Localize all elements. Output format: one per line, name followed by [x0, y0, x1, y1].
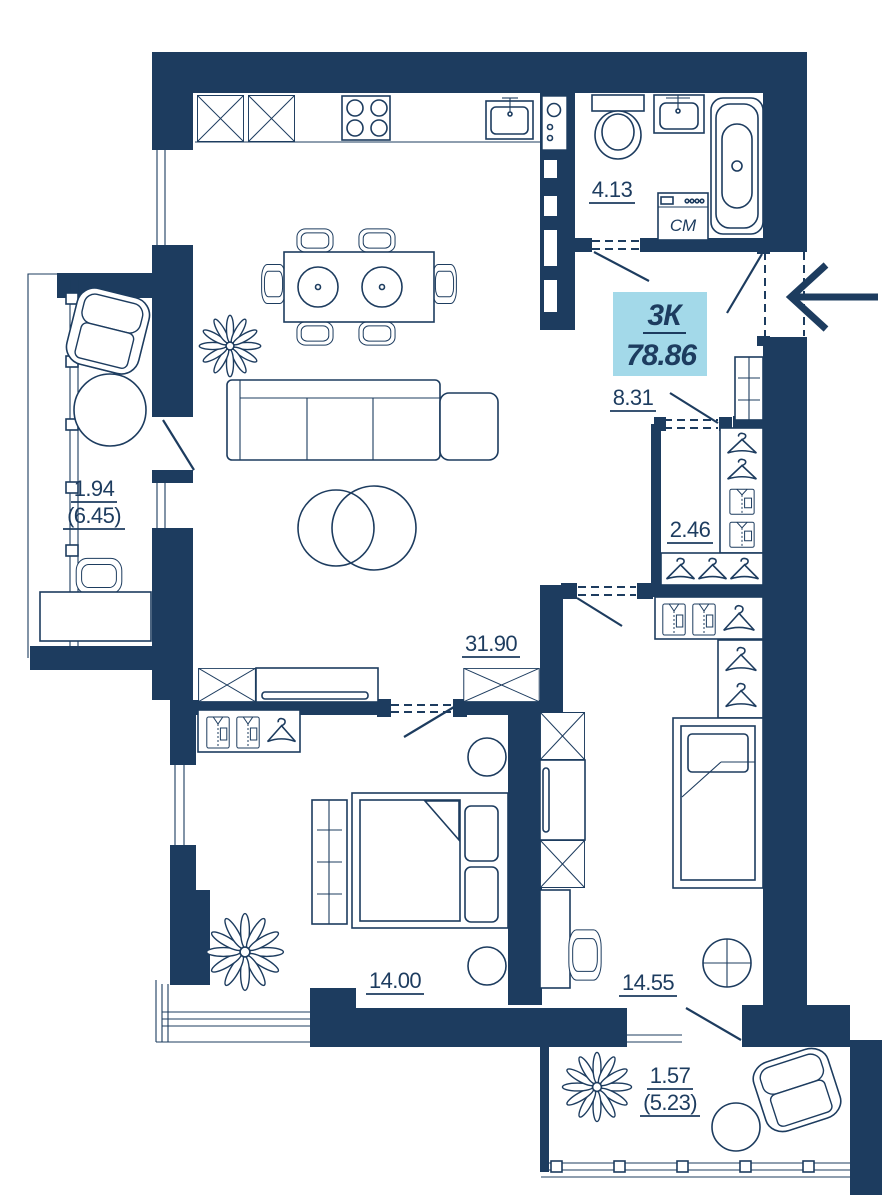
hall-bench: [735, 357, 763, 420]
shirt-icon: [693, 604, 715, 635]
kitchen-sink: [486, 98, 533, 139]
sofa: [227, 380, 498, 460]
round-table: [703, 939, 751, 987]
wardrobe-door: [664, 393, 718, 428]
bedroom2-balcony-window: [627, 1035, 682, 1042]
loggia-bottom-furniture: [562, 1044, 845, 1151]
cabinet-x: [540, 712, 584, 759]
wall-bottom-main: [310, 1008, 627, 1047]
wardrobe-room-furniture: [661, 428, 763, 585]
bedroom1-door-post-left: [377, 699, 391, 717]
desk: [540, 890, 570, 988]
loggia-left-door-leaf: [163, 420, 194, 470]
bedroom2-wardrobe: [655, 597, 763, 639]
cabinet-x: [540, 840, 584, 887]
plant: [199, 315, 260, 376]
wall-top: [152, 52, 807, 93]
dining-table: [284, 252, 434, 322]
desk-chair: [76, 558, 122, 593]
floor-plan: СМ: [0, 0, 882, 1200]
bedroom1-bench: [312, 800, 347, 924]
bathroom-fixtures: СМ: [592, 95, 763, 240]
bedroom2-door: [577, 587, 636, 626]
bedroom2-door-post-right: [637, 583, 653, 599]
room-label-bathroom: 4.13: [592, 177, 633, 202]
dining-chair: [297, 322, 333, 345]
desk: [40, 592, 151, 641]
hall-bedroom2-wall: [540, 585, 563, 712]
shaft-slot: [544, 196, 557, 216]
hall-furniture: [735, 357, 763, 420]
wall-left-a: [152, 93, 193, 150]
washbasin: [654, 95, 704, 133]
shaft-slot: [544, 160, 557, 178]
armchair: [749, 1044, 845, 1137]
plant: [562, 1052, 631, 1121]
bedroom1-wardrobe: [198, 710, 300, 752]
loggia-left-bottom-wall: [30, 646, 153, 670]
sofa-chaise: [440, 393, 498, 460]
loggia-bottom-glazing: [541, 1161, 852, 1177]
pillow: [465, 867, 498, 922]
bedroom1-window: [175, 765, 184, 845]
shaft-slot: [544, 230, 557, 266]
coffee-tables: [298, 486, 416, 570]
dining-chair: [262, 265, 286, 304]
bed-single: [673, 718, 763, 888]
kitchen: [195, 95, 540, 142]
wall-left-c: [152, 470, 193, 483]
round-table: [712, 1103, 760, 1151]
bedroom-1-furniture: [198, 710, 508, 990]
entry-door-post-bottom: [757, 336, 770, 346]
tv-screen: [543, 768, 549, 832]
shirt-icon: [207, 717, 229, 748]
floor-plan-page: СМ: [0, 0, 882, 1200]
tv-stand-row: [199, 668, 540, 702]
kitchen-window: [157, 150, 165, 245]
desk-chair: [569, 930, 601, 980]
bedroom2-door-post-left: [561, 583, 577, 599]
round-table: [74, 374, 146, 446]
unit-area-label: 78.86: [626, 339, 697, 372]
wardrobe-bottom-wall: [651, 585, 763, 597]
room-label-loggia-bottom-weighted: (5.23): [643, 1090, 697, 1115]
room-label-loggia-bottom: 1.57: [650, 1063, 691, 1088]
bottom-wall-step: [310, 988, 356, 1010]
room-label-loggia-left-weighted: (6.45): [67, 503, 121, 528]
bedroom1-door: [391, 705, 454, 737]
bedroom-2-furniture: [540, 597, 763, 988]
unit-type-label: 3К: [647, 299, 684, 332]
shirt-icon: [237, 717, 259, 748]
room-label-wardrobe: 2.46: [670, 517, 711, 542]
wall-left-d: [152, 528, 193, 700]
room-label-bedroom-2: 14.55: [622, 970, 674, 995]
bedroom1-left-wall-c: [170, 890, 210, 985]
room-label-hall: 8.31: [613, 385, 654, 410]
shirt-icon: [663, 604, 685, 635]
loggia-bottom-left-wall: [540, 1047, 549, 1172]
shirt-icon: [730, 522, 754, 547]
unit-info-badge: 3К 78.86: [613, 292, 707, 376]
bedroom1-corner-window: [156, 980, 310, 1042]
room-label-loggia-left: 1.94: [74, 476, 115, 501]
stool: [468, 738, 506, 776]
wall-left-b: [152, 245, 193, 417]
tv-cabinet-x: [464, 668, 539, 701]
tv-cabinet-x: [199, 668, 256, 701]
washing-machine: СМ: [658, 193, 708, 240]
bedroom2-hanger-column: [718, 640, 763, 718]
stool: [468, 947, 506, 985]
bedrooms-divider-wall: [508, 700, 542, 1005]
bed-double: [352, 793, 508, 928]
loggia-bottom-right-wall: [850, 1040, 882, 1195]
dining-chair: [433, 265, 457, 304]
dining-chair: [359, 229, 395, 252]
bathroom-wall-left: [567, 238, 592, 252]
washing-machine-label: СМ: [670, 216, 697, 235]
dining-set: [262, 229, 457, 345]
shaft-slot: [544, 280, 557, 312]
tv-screen: [262, 692, 368, 699]
toilet: [592, 95, 644, 159]
pillow: [465, 806, 498, 861]
plant: [207, 914, 284, 991]
kitchen-stove: [342, 96, 390, 140]
bedroom2-cabinet-column: [540, 712, 585, 887]
dining-chair: [297, 229, 333, 252]
dining-chair: [359, 322, 395, 345]
shirt-icon: [730, 489, 754, 514]
pillow: [688, 734, 748, 772]
wall-bottom-right: [742, 1005, 850, 1047]
bedroom1-left-wall-b: [170, 845, 196, 890]
wardrobe-left-wall: [651, 424, 661, 588]
wall-right-upper: [763, 93, 807, 252]
room-label-kitchen-living: 31.90: [465, 631, 517, 656]
wall-right-lower: [763, 337, 807, 1007]
living-balcony-window: [157, 483, 165, 528]
loggia-left-furniture: [40, 284, 153, 641]
kitchen-cabinet-x: [248, 95, 294, 141]
kitchen-cabinet-x: [197, 95, 243, 141]
room-label-bedroom-1: 14.00: [369, 968, 421, 993]
bathtub: [711, 98, 763, 234]
loggia-bottom-door-leaf: [686, 1008, 741, 1040]
